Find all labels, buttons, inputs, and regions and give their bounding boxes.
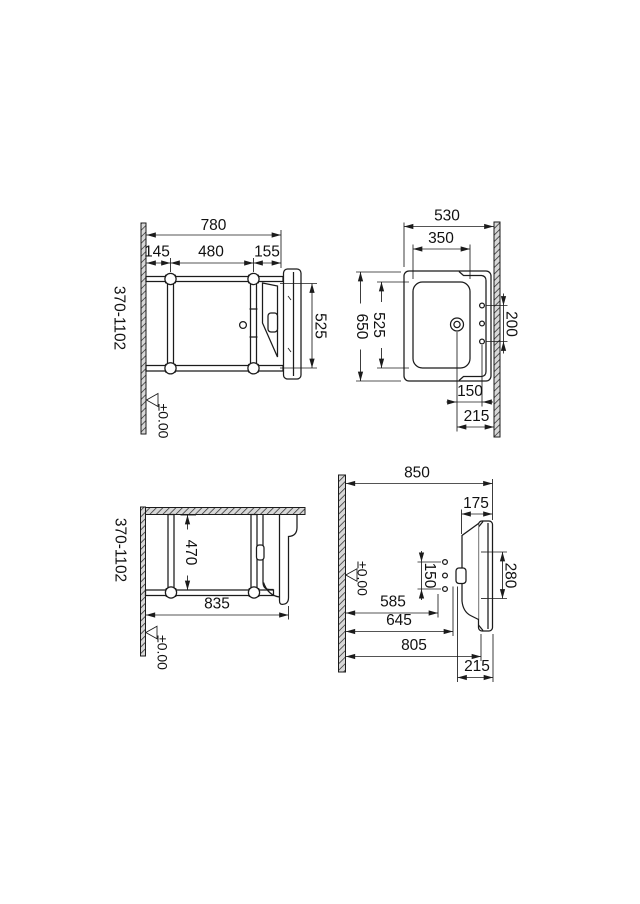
dim-label: 175 — [463, 495, 489, 512]
dim-label: 145 — [144, 244, 170, 261]
height-range-label: 370-1102 — [111, 286, 128, 350]
wall-section — [494, 222, 500, 437]
dim-label: 850 — [404, 465, 430, 482]
drain-boss — [257, 545, 265, 560]
page-background — [0, 0, 640, 904]
dim-label: 200 — [503, 311, 520, 337]
dim-label: 525 — [370, 312, 387, 338]
technical-drawing-canvas: 780 145 480 155 525 370-1102 ±0.00 — [0, 0, 640, 904]
dim-label: 835 — [204, 596, 230, 613]
fixing-hole — [443, 573, 448, 578]
dim-label: 650 — [353, 314, 370, 340]
dim-label: 350 — [428, 230, 454, 247]
wall-section — [339, 475, 346, 672]
dim-label: 215 — [464, 658, 490, 675]
dim-label: 585 — [380, 594, 406, 611]
dim-label: 525 — [312, 313, 329, 339]
dim-label: 645 — [386, 612, 412, 629]
frame-post-left — [168, 515, 174, 591]
frame-post-left — [168, 282, 174, 366]
svg-text:370-1102: 370-1102 — [112, 518, 129, 582]
dim-label: 150 — [457, 383, 483, 400]
dim-label: 480 — [198, 244, 224, 261]
drain-boss — [268, 313, 278, 332]
dim-label: 530 — [434, 208, 460, 225]
dim-label: 150 — [421, 563, 438, 589]
datum-label: ±0.00 — [355, 561, 371, 596]
fixing-hole — [480, 321, 485, 326]
dim-label: 805 — [401, 637, 427, 654]
height-range-label: 370-1102 — [112, 518, 129, 582]
basin-rim-profile — [479, 521, 493, 631]
fixing-hole — [480, 303, 485, 308]
datum-label: ±0.00 — [156, 404, 172, 439]
drain-hole-inner — [454, 321, 460, 327]
dim-label: 280 — [502, 563, 519, 589]
fixing-hole — [240, 322, 247, 329]
drain-boss — [456, 568, 466, 584]
frame-post-right — [251, 282, 257, 366]
dim-label: 155 — [254, 244, 280, 261]
datum-label: ±0.00 — [155, 635, 171, 670]
fixing-hole — [480, 339, 485, 344]
wall-plan-section — [146, 508, 306, 515]
wall-section — [141, 507, 146, 656]
basin-rim-profile — [284, 269, 302, 379]
dim-label: 215 — [464, 408, 490, 425]
svg-text:370-1102: 370-1102 — [111, 286, 128, 350]
dim-label: 780 — [201, 217, 227, 234]
dim-label: 470 — [182, 540, 199, 566]
fixing-hole — [443, 587, 448, 592]
fixing-hole — [443, 560, 448, 565]
